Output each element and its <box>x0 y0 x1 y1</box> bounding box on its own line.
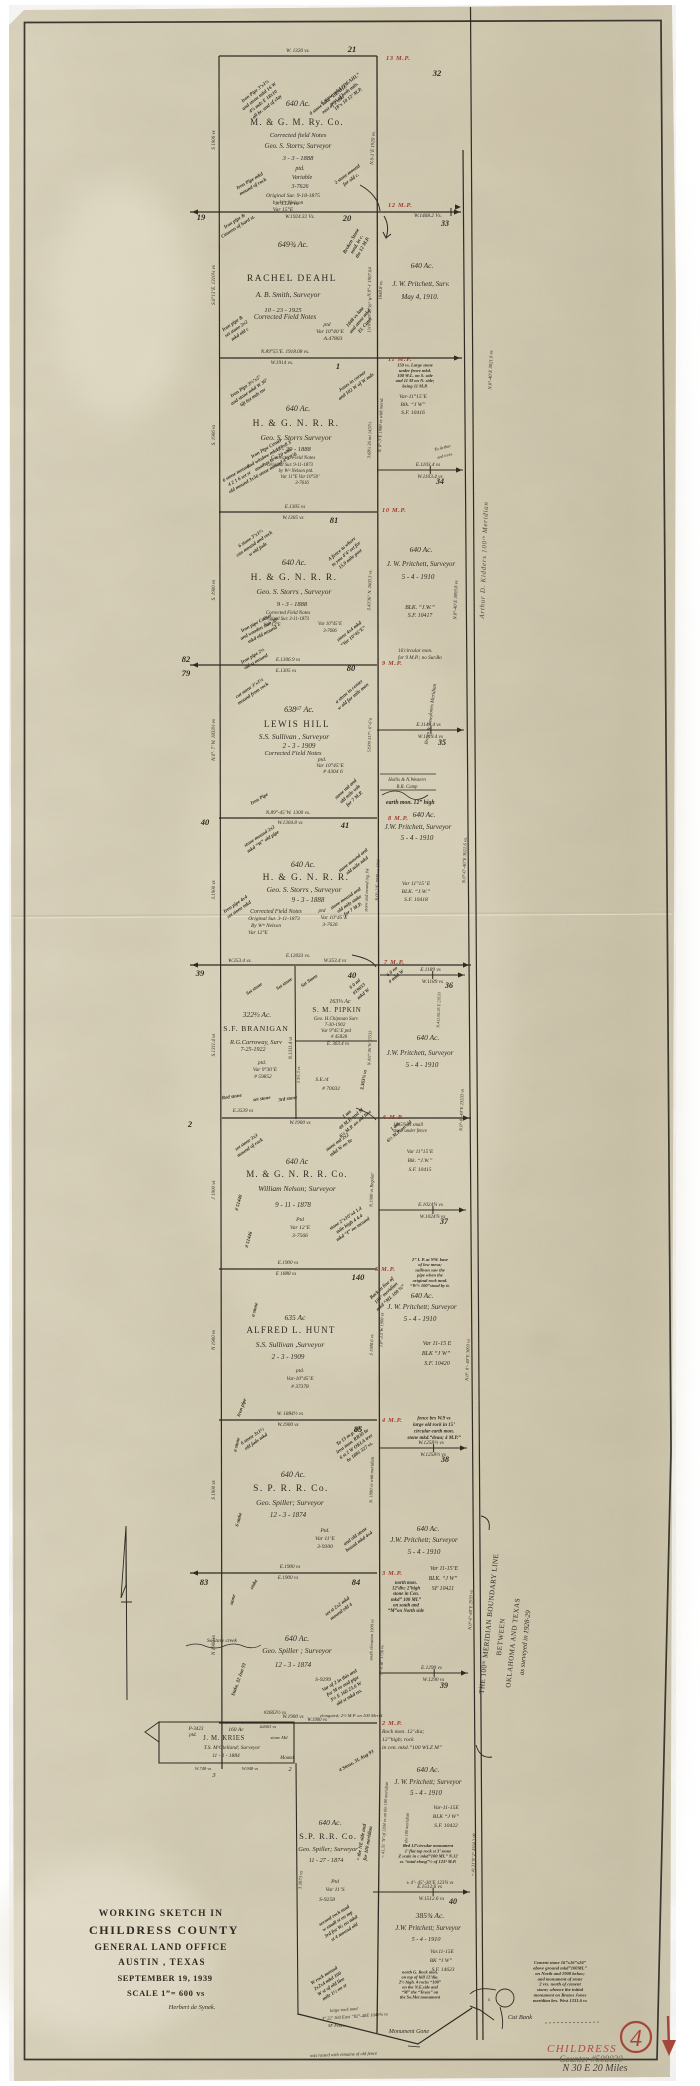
svg-text:ptd.: ptd. <box>257 1060 266 1066</box>
svg-text:7 M.P.: 7 M.P. <box>384 959 405 966</box>
svg-text:W.1900 vs: W.1900 vs <box>277 1422 298 1428</box>
svg-text:W.353.4 vs: W.353.4 vs <box>324 957 346 964</box>
svg-text:5 - 4 - 1910: 5 - 4 - 1910 <box>410 1790 442 1797</box>
svg-text:S.F. 10418: S.F. 10418 <box>404 897 428 903</box>
svg-text:6 M.P.: 6 M.P. <box>383 1114 404 1121</box>
svg-text:Herbert de Synek.: Herbert de Synek. <box>168 2004 216 2011</box>
svg-text:ptd.: ptd. <box>188 1733 197 1738</box>
svg-text:#2663 vs: #2663 vs <box>260 1724 277 1729</box>
svg-text:A.47803: A.47803 <box>323 336 343 342</box>
svg-text:S.S. Sullivan , Surveyor: S.S. Sullivan , Surveyor <box>259 732 329 741</box>
svg-text:meridian brs. West 1331.6 vs: meridian brs. West 1331.6 vs <box>533 1998 587 2003</box>
svg-text:# 4304 6: # 4304 6 <box>323 769 343 775</box>
svg-text:5 M.P.: 5 M.P. <box>375 1266 396 1273</box>
svg-text:Var-11°15’E: Var-11°15’E <box>399 393 427 400</box>
svg-text:W.1900 vs: W.1900 vs <box>289 1120 310 1126</box>
svg-text:S-9299: S-9299 <box>315 1677 331 1683</box>
svg-text:BLK. “J W”: BLK. “J W” <box>429 1575 458 1582</box>
svg-text:Corrected Field Notes: Corrected Field Notes <box>265 750 322 757</box>
svg-text:N 1900 vs: N 1900 vs <box>212 1635 217 1656</box>
svg-text:RACHEL DEAHL: RACHEL DEAHL <box>247 274 337 284</box>
svg-text:J. M. KRIES: J. M. KRIES <box>203 1735 245 1742</box>
svg-text:Cement stone 16”x16”x24”: Cement stone 16”x16”x24” <box>534 1960 587 1965</box>
svg-text:36: 36 <box>444 981 453 990</box>
svg-text:12”high; rock: 12”high; rock <box>382 1737 414 1743</box>
svg-text:E.1189 vs: E.1189 vs <box>419 967 441 973</box>
svg-text:3 3½ 3 vs: 3 3½ 3 vs <box>296 1066 301 1083</box>
svg-text:5 - 4 - 1910: 5 - 4 - 1910 <box>402 573 435 581</box>
svg-text:Var 10°40’E: Var 10°40’E <box>316 328 344 335</box>
svg-text:19: 19 <box>197 212 206 222</box>
svg-text:E.1024¾ vs: E.1024¾ vs <box>417 1202 443 1208</box>
svg-text:40: 40 <box>347 970 357 980</box>
svg-text:9 M.P.: 9 M.P. <box>382 660 403 667</box>
svg-text:9 - 11 - 1878: 9 - 11 - 1878 <box>275 1201 311 1209</box>
svg-text:Var 11-15 E: Var 11-15 E <box>423 1341 452 1347</box>
svg-text:640 Ac.: 640 Ac. <box>410 545 433 554</box>
svg-text:ptd: ptd <box>318 908 326 914</box>
svg-text:10 M.P.: 10 M.P. <box>382 507 407 514</box>
svg-text:W.1304.8 vs: W.1304.8 vs <box>277 819 302 826</box>
svg-text:earth mon. 12” high: earth mon. 12” high <box>386 800 435 806</box>
svg-text:5 - 4 - 1910: 5 - 4 - 1910 <box>404 1315 437 1323</box>
svg-text:3-7566: 3-7566 <box>291 1233 308 1239</box>
svg-text:Corrected Field Notes: Corrected Field Notes <box>254 313 317 321</box>
svg-text:W.1512.6 vs: W.1512.6 vs <box>419 1896 445 1902</box>
svg-text:the So.Met monument: the So.Met monument <box>400 1995 441 2000</box>
svg-text:39: 39 <box>195 968 205 978</box>
svg-text:M. & G. N. R. R. Co.: M. & G. N. R. R. Co. <box>246 1169 348 1179</box>
svg-text:640 Ac.: 640 Ac. <box>319 1818 342 1827</box>
svg-text:stone mkd.“deau; 4 M.P.”: stone mkd.“deau; 4 M.P.” <box>406 1435 461 1441</box>
svg-text:E.1306.9 vs: E.1306.9 vs <box>275 657 300 663</box>
svg-text:Monument Gone: Monument Gone <box>388 2029 429 2035</box>
svg-text:41: 41 <box>340 820 350 830</box>
svg-text:N 1900 vs: N 1900 vs <box>212 1330 217 1351</box>
svg-text:large old rock in 15’: large old rock in 15’ <box>413 1423 455 1428</box>
svg-text:3 3973 vs: 3 3973 vs <box>299 1871 305 1890</box>
svg-text:E.3539 vs: E.3539 vs <box>232 1108 253 1114</box>
svg-text:# 37378: # 37378 <box>291 1384 309 1390</box>
svg-text:J. W. Pritchett, Surveyor: J. W. Pritchett, Surveyor <box>387 560 456 568</box>
svg-text:AUSTIN , TEXAS: AUSTIN , TEXAS <box>118 1957 205 1967</box>
svg-text:A. B. Smith, Surveyor: A. B. Smith, Surveyor <box>255 290 321 299</box>
svg-text:north mon.: north mon. <box>395 1581 417 1586</box>
svg-text:P-3423: P-3423 <box>188 1727 204 1732</box>
svg-text:Geo. S. Storrs , Surveyor: Geo. S. Storrs , Surveyor <box>267 885 342 894</box>
svg-text:40: 40 <box>200 817 210 827</box>
svg-text:322⅔ Ac.: 322⅔ Ac. <box>242 1010 272 1019</box>
svg-text:12’div; 2’high: 12’div; 2’high <box>392 1587 420 1592</box>
svg-text:J.W. Pritchett; Surveyor: J.W. Pritchett; Surveyor <box>390 1536 458 1544</box>
svg-text:GENERAL LAND OFFICE: GENERAL LAND OFFICE <box>94 1943 227 1953</box>
svg-text:640 Ac.: 640 Ac. <box>411 1291 434 1300</box>
svg-text:635 Ac: 635 Ac <box>285 1313 307 1322</box>
svg-text:S.0°13’E. 1310¼ vs: S.0°13’E. 1310¼ vs <box>212 265 217 305</box>
svg-text:2 vrs. north of cement: 2 vrs. north of cement <box>538 1982 581 1987</box>
svg-text:2: 2 <box>187 1119 193 1129</box>
svg-text:S. M. PIPKIN: S. M. PIPKIN <box>312 1006 361 1014</box>
svg-text:W.1305 vs: W.1305 vs <box>282 515 303 521</box>
svg-text:3-7606: 3-7606 <box>323 629 337 634</box>
svg-text:Var 11-15’E: Var 11-15’E <box>430 1566 459 1572</box>
svg-text:SCALE 1”= 600 vs: SCALE 1”= 600 vs <box>127 1988 205 1998</box>
svg-text:Var 12°E: Var 12°E <box>248 929 268 936</box>
svg-text:Geo. Spiller; Surveyor: Geo. Spiller; Surveyor <box>256 1498 324 1507</box>
svg-text:12 - 3 - 1874: 12 - 3 - 1874 <box>270 1511 307 1519</box>
svg-text:in cen. mkd.”100 WLZ M”: in cen. mkd.”100 WLZ M” <box>382 1745 442 1751</box>
svg-text:Var 9°45’E ptd: Var 9°45’E ptd <box>321 1029 352 1034</box>
svg-text:Corrected Field Notes: Corrected Field Notes <box>266 611 311 616</box>
svg-text:ptd.: ptd. <box>295 1368 304 1374</box>
svg-text:Geo. Spiller ; Surveyor: Geo. Spiller ; Surveyor <box>262 1646 332 1655</box>
svg-text:stone Md: stone Md <box>271 1735 289 1740</box>
svg-text:W.1914 vs.: W.1914 vs. <box>271 359 293 366</box>
svg-text:640 Ac.: 640 Ac. <box>291 860 315 869</box>
svg-text:W.1189 vs: W.1189 vs <box>422 979 443 985</box>
svg-text:38: 38 <box>440 1455 449 1464</box>
svg-text:S.P. R.R. Co.: S.P. R.R. Co. <box>299 1831 357 1841</box>
svg-text:5 - 4 - 1910: 5 - 4 - 1910 <box>406 1061 439 1069</box>
svg-text:20: 20 <box>342 213 352 223</box>
svg-text:84: 84 <box>352 1577 361 1587</box>
svg-text:E.1305 vs: E.1305 vs <box>284 504 305 510</box>
svg-text:J.W. Pritchett, Surveyor: J.W. Pritchett, Surveyor <box>387 1049 454 1057</box>
svg-text:640 Ac.: 640 Ac. <box>417 1524 440 1533</box>
svg-text:3 - 3 - 1888: 3 - 3 - 1888 <box>282 155 314 162</box>
svg-text:Corrected Field Notes: Corrected Field Notes <box>250 909 302 915</box>
svg-text:8 M.P.: 8 M.P. <box>388 815 409 822</box>
svg-text:H. & G. N. R. R.: H. & G. N. R. R. <box>263 873 350 883</box>
svg-text:Corrected field Notes: Corrected field Notes <box>270 132 327 139</box>
svg-text:Rock mon. 12’ dia;: Rock mon. 12’ dia; <box>381 1729 424 1735</box>
svg-text:S.E./4: S.E./4 <box>315 1076 328 1083</box>
svg-text:monument on Brazos Jones: monument on Brazos Jones <box>534 1993 587 1998</box>
svg-text:stone in Cen.: stone in Cen. <box>392 1592 419 1597</box>
svg-text:“M”on North side: “M”on North side <box>388 1608 425 1614</box>
svg-text:5 - 4 - 1910: 5 - 4 - 1910 <box>412 1936 442 1943</box>
svg-text:3.1900 vs: 3.1900 vs <box>212 880 217 899</box>
svg-text:W. 1326 vs.: W. 1326 vs. <box>286 48 310 54</box>
svg-text:S.F. 10420: S.F. 10420 <box>424 1360 449 1367</box>
svg-text:R.G.Carroway, Surv: R.G.Carroway, Surv <box>229 1039 282 1046</box>
svg-text:N.89°55’E. 1918.08 vs.: N.89°55’E. 1918.08 vs. <box>260 348 309 355</box>
svg-text:William Nelson; Surveyor: William Nelson; Surveyor <box>258 1184 336 1193</box>
svg-text:stone; whence the initial: stone; whence the initial <box>536 1987 584 1992</box>
svg-text:± 4’- 45’-30’E 123¾ vs: ± 4’- 45’-30’E 123¾ vs <box>406 1881 453 1886</box>
svg-text:3-7626: 3-7626 <box>321 922 338 928</box>
svg-text:39: 39 <box>439 1681 448 1690</box>
svg-text:S. 1900 vs: S. 1900 vs <box>212 580 217 600</box>
svg-text:H. & G. N. R. R.: H. & G. N. R. R. <box>253 419 340 429</box>
svg-text:circular earth mon.: circular earth mon. <box>414 1429 454 1434</box>
svg-text:E 1888 vs: E 1888 vs <box>275 1271 296 1277</box>
svg-text:640 Ac.: 640 Ac. <box>282 558 306 567</box>
svg-text:Original Sur. 9-18-1875: Original Sur. 9-18-1875 <box>266 193 320 199</box>
svg-text:13 M.P.: 13 M.P. <box>386 55 411 62</box>
svg-text:638⁶⁷ Ac.: 638⁶⁷ Ac. <box>284 705 314 714</box>
svg-text:BLK “J W”: BLK “J W” <box>422 1350 451 1357</box>
svg-text:4: 4 <box>630 2026 642 2052</box>
svg-text:Var 11’S: Var 11’S <box>325 1887 344 1893</box>
svg-text:4 M.P.: 4 M.P. <box>381 1417 403 1424</box>
svg-text:81: 81 <box>330 515 339 525</box>
svg-text:Variable: Variable <box>292 175 313 181</box>
svg-text:E.1305 vs: E.1305 vs <box>275 668 296 674</box>
svg-text:5F Fence: 5F Fence <box>328 2023 345 2028</box>
svg-text:M. & G. M. Ry. Co.: M. & G. M. Ry. Co. <box>250 117 344 127</box>
svg-text:J. W. Pritchett; Surveyor: J. W. Pritchett; Surveyor <box>387 1303 456 1311</box>
svg-text:Var-11-15E: Var-11-15E <box>433 1805 459 1811</box>
svg-text:# 70032: # 70032 <box>322 1086 340 1092</box>
svg-text:Ptd: Ptd <box>330 1879 339 1885</box>
svg-text:# 1324 vs.: # 1324 vs. <box>277 201 300 207</box>
svg-text:2 M.P.: 2 M.P. <box>381 1720 403 1727</box>
svg-text:mkd” 100 ML”: mkd” 100 ML” <box>391 1598 422 1603</box>
svg-text:ptd.: ptd. <box>294 166 304 172</box>
svg-text:elongated; 2½ M.P. on 100 Meri: elongated; 2½ M.P. on 100 Merid. <box>320 1713 383 1718</box>
svg-text:163⅓ Ac: 163⅓ Ac <box>329 999 351 1005</box>
svg-text:S.F. BRANIGAN: S.F. BRANIGAN <box>223 1024 288 1033</box>
svg-text:E. 363.4 vs: E. 363.4 vs <box>326 1042 349 1047</box>
svg-text:Geo. Spiller; Surveyor: Geo. Spiller; Surveyor <box>298 1846 358 1853</box>
svg-text:Var 10°45’E: Var 10°45’E <box>318 622 342 627</box>
svg-text:11 - 27 - 1874: 11 - 27 - 1874 <box>309 1857 344 1864</box>
svg-text:5 - 4 - 1910: 5 - 4 - 1910 <box>408 1548 441 1556</box>
svg-text:Geo. S. Storrs Surveyor: Geo. S. Storrs Surveyor <box>260 433 331 442</box>
svg-text:W.1468.2 Vs.: W.1468.2 Vs. <box>414 213 442 219</box>
svg-text:W.748 vs: W.748 vs <box>195 1766 212 1771</box>
svg-text:W.353.4 vs.: W.353.4 vs. <box>228 957 252 964</box>
svg-text:385¾ Ac.: 385¾ Ac. <box>415 1911 445 1920</box>
svg-text:# 59852: # 59852 <box>254 1074 272 1080</box>
svg-text:S 1900.6 vs: S 1900.6 vs <box>369 1334 375 1355</box>
svg-text:“W½ 100”stood by it.: “W½ 100”stood by it. <box>410 1283 450 1288</box>
svg-text:SF 10421: SF 10421 <box>432 1585 454 1592</box>
svg-text:640 Ac.: 640 Ac. <box>413 810 436 819</box>
svg-text:Geo. S. Storrs; Surveyor: Geo. S. Storrs; Surveyor <box>265 143 332 150</box>
svg-text:Var 15°E: Var 15°E <box>273 206 294 213</box>
svg-text:Blk. “J.W.”: Blk. “J.W.” <box>408 1157 433 1164</box>
svg-text:ALFRED L. HUNT: ALFRED L. HUNT <box>246 1325 335 1335</box>
svg-text:WORKING SKETCH IN: WORKING SKETCH IN <box>99 1909 223 1919</box>
svg-text:LEWIS HILL: LEWIS HILL <box>264 719 330 729</box>
svg-text:160 Ac: 160 Ac <box>228 1727 244 1733</box>
svg-text:S.F. 10422: S.F. 10422 <box>434 1823 458 1829</box>
svg-text:S. 1906 vs: S. 1906 vs <box>212 425 217 445</box>
svg-text:S. P. R. R. Co.: S. P. R. R. Co. <box>253 1484 329 1494</box>
svg-text:16'circular mon.: 16'circular mon. <box>398 648 432 654</box>
svg-text:st. “total elong”½ of 123³ M.P: st. “total elong”½ of 123³ M.P. <box>399 1859 456 1864</box>
svg-text:W.1258⅔ vs: W.1258⅔ vs <box>418 1440 444 1446</box>
svg-text:E.1103.4 vs: E.1103.4 vs <box>415 462 440 468</box>
svg-text:S.F. 10416: S.F. 10416 <box>401 410 425 416</box>
svg-text:T.S. MᶜClelland; Surveyor: T.S. MᶜClelland; Surveyor <box>204 1745 261 1751</box>
svg-text:May 4, 1910.: May 4, 1910. <box>401 293 439 301</box>
svg-text:S.F. 10415: S.F. 10415 <box>409 1167 432 1173</box>
svg-text:3-9300: 3-9300 <box>316 1544 333 1550</box>
svg-text:12 - 3 - 1874: 12 - 3 - 1874 <box>275 1661 312 1669</box>
svg-text:E.12033 vs.: E.12033 vs. <box>285 953 310 959</box>
svg-text:7-25-1922: 7-25-1922 <box>241 1047 266 1053</box>
svg-text:N.0°· 7’ W. 1833½ vs: N.0°· 7’ W. 1833½ vs <box>212 719 217 762</box>
svg-text:Original Sur. 3-11-1873: Original Sur. 3-11-1873 <box>248 916 300 922</box>
svg-text:5 - 4 - 1910: 5 - 4 - 1910 <box>401 834 434 842</box>
svg-text:79: 79 <box>182 668 191 678</box>
svg-text:9 - 3 - 1888: 9 - 3 - 1888 <box>277 601 308 608</box>
svg-text:1848.8 vs.: 1848.8 vs. <box>379 280 385 300</box>
svg-text:J. W. Pritchett; Surveyor: J. W. Pritchett; Surveyor <box>394 1779 461 1786</box>
svg-text:3-7626: 3-7626 <box>291 184 309 190</box>
svg-text:3 M.P.: 3 M.P. <box>381 1570 403 1577</box>
svg-text:7-30-1902: 7-30-1902 <box>325 1023 346 1028</box>
svg-text:J.W. Pritchett, Surveyor: J.W. Pritchett, Surveyor <box>385 823 452 831</box>
svg-text:640 Ac.: 640 Ac. <box>417 1033 440 1042</box>
svg-text:640 Ac.: 640 Ac. <box>286 404 310 413</box>
svg-text:9 - 3 - 1888: 9 - 3 - 1888 <box>292 896 325 904</box>
svg-text:BLK. “J.W.”: BLK. “J.W.” <box>405 604 435 611</box>
svg-text:J.W. Pritchett; Surveyor: J.W. Pritchett; Surveyor <box>395 1925 461 1932</box>
svg-text:Geo. H.Chipman Surv: Geo. H.Chipman Surv <box>314 1017 359 1022</box>
svg-text:34: 34 <box>435 477 444 486</box>
svg-text:Var-10°45’E: Var-10°45’E <box>286 1375 314 1382</box>
svg-text:BLK “J W”: BLK “J W” <box>433 1813 459 1820</box>
svg-text:2 - 3 - 1909: 2 - 3 - 1909 <box>283 742 316 750</box>
svg-text:and monument of stone: and monument of stone <box>538 1976 583 1981</box>
svg-text:Hollis & N.Western: Hollis & N.Western <box>387 778 426 783</box>
svg-text:on south and: on south and <box>393 1603 419 1608</box>
svg-text:11 - 1 - 1884: 11 - 1 - 1884 <box>212 1753 240 1759</box>
svg-text:140: 140 <box>352 1272 366 1282</box>
svg-text:32: 32 <box>432 68 442 78</box>
svg-text:SEPTEMBER 19, 1939: SEPTEMBER 19, 1939 <box>117 1973 212 1983</box>
svg-text:N.1311.4 vs: N.1311.4 vs <box>289 1037 294 1061</box>
svg-text:S-9258: S-9258 <box>319 1897 335 1903</box>
svg-text:35: 35 <box>437 738 446 747</box>
svg-text:649¾ Ac.: 649¾ Ac. <box>278 240 308 249</box>
svg-text:#2663½ vs: #2663½ vs <box>264 1709 286 1716</box>
svg-text:Var 10°45’E: Var 10°45’E <box>316 762 344 769</box>
svg-text:Var 9°30’E: Var 9°30’E <box>253 1066 278 1073</box>
svg-text:CHILDRESS COUNTY: CHILDRESS COUNTY <box>89 1923 239 1937</box>
svg-text:fence brs W.9 vs: fence brs W.9 vs <box>417 1416 450 1421</box>
svg-text:Blk. “J W”: Blk. “J W” <box>400 401 425 408</box>
svg-text:W. 1884½ vs: W. 1884½ vs <box>277 1410 303 1417</box>
svg-text:BLK. “J.W.”: BLK. “J.W.” <box>402 888 431 895</box>
svg-text:640 Ac.: 640 Ac. <box>417 1765 440 1774</box>
svg-text:BK “J W”: BK “J W” <box>430 1957 452 1964</box>
svg-text:N.89°-45’W. 1300 vs.: N.89°-45’W. 1300 vs. <box>265 809 310 816</box>
svg-text:Var 11°E Var 10°50’: Var 11°E Var 10°50’ <box>280 475 320 480</box>
svg-text:640 Ac.: 640 Ac. <box>286 99 310 108</box>
svg-text:0°-0′38″ 1736 vs: 0°-0′38″ 1736 vs <box>378 1645 384 1675</box>
svg-text:37: 37 <box>439 1217 449 1226</box>
svg-text:Var 11°15’ E: Var 11°15’ E <box>402 880 431 887</box>
svg-text:640 Ac.: 640 Ac. <box>281 1470 305 1479</box>
svg-text:S.S. Sullivan ,Surveyor: S.S. Sullivan ,Surveyor <box>256 1340 325 1349</box>
svg-text:Var 12’E: Var 12’E <box>290 1225 311 1231</box>
svg-text:being 11 M.P.: being 11 M.P. <box>402 383 427 388</box>
svg-text:Var 11°15’E: Var 11°15’E <box>407 1148 434 1155</box>
svg-text:Var 11’E: Var 11’E <box>315 1536 335 1542</box>
svg-text:W.1900 vs: W.1900 vs <box>307 1718 327 1723</box>
svg-text:21: 21 <box>347 44 357 54</box>
svg-text:S 1906 vs: S 1906 vs <box>212 130 217 149</box>
svg-text:Cut Bank: Cut Bank <box>508 2014 532 2021</box>
svg-text:by Wᵐ Nelson ptd.: by Wᵐ Nelson ptd. <box>279 469 314 474</box>
svg-text:S.1311.4 vs: S.1311.4 vs <box>212 1034 217 1057</box>
svg-text:640 Ac: 640 Ac <box>286 1157 309 1166</box>
svg-text:E.1900 vs: E.1900 vs <box>279 1564 300 1570</box>
svg-text:for 9 M.P.; no Sur.Bo: for 9 M.P.; no Sur.Bo <box>398 654 442 661</box>
svg-text:N 30 E 20 Miles: N 30 E 20 Miles <box>562 2063 628 2074</box>
svg-text:Ptd: Ptd <box>295 1217 304 1223</box>
svg-text:S.F. 10417: S.F. 10417 <box>408 612 434 619</box>
svg-text:J 1900 vs: J 1900 vs <box>212 1181 217 1200</box>
svg-text:Geo. S. Storrs , Surveyor: Geo. S. Storrs , Surveyor <box>257 587 332 596</box>
svg-text:1: 1 <box>336 361 340 371</box>
svg-text:12 M.P.: 12 M.P. <box>388 202 413 209</box>
svg-text:82: 82 <box>182 654 191 664</box>
svg-text:Mound: Mound <box>279 1756 294 1761</box>
svg-text:40: 40 <box>448 1897 457 1906</box>
svg-text:W.1924.32 Vs.: W.1924.32 Vs. <box>285 213 315 220</box>
svg-text:Var.11-15E: Var.11-15E <box>430 1949 454 1955</box>
svg-text:J. W. Pritchett, Surv.: J. W. Pritchett, Surv. <box>392 280 450 288</box>
svg-text:above ground mkd”100ML”: above ground mkd”100ML” <box>533 1966 587 1971</box>
svg-text:33: 33 <box>440 219 449 228</box>
svg-text:R.R. Camp: R.R. Camp <box>396 785 419 790</box>
svg-text:H. & G. N. R. R.: H. & G. N. R. R. <box>251 573 338 583</box>
svg-text:W.948 vs: W.948 vs <box>242 1766 259 1771</box>
svg-text:83: 83 <box>200 1577 209 1587</box>
svg-text:80: 80 <box>347 663 356 673</box>
svg-text:S 1900 vs: S 1900 vs <box>212 1480 217 1499</box>
svg-text:By Wᵐ Nelson: By Wᵐ Nelson <box>251 923 281 929</box>
svg-text:Ptd.: Ptd. <box>319 1528 329 1534</box>
svg-text:# 45828: # 45828 <box>331 1035 348 1040</box>
svg-text:E.1290 vs: E.1290 vs <box>420 1665 442 1671</box>
svg-text:2 - 3 - 1909: 2 - 3 - 1909 <box>272 1353 305 1361</box>
svg-text:on North and 1908 below;: on North and 1908 below; <box>535 1971 585 1976</box>
svg-text:640 Ac.: 640 Ac. <box>285 1634 309 1643</box>
svg-text:E.1900 vs: E.1900 vs <box>277 1575 298 1581</box>
svg-text:E.1900 vs: E.1900 vs <box>277 1260 298 1266</box>
svg-text:3-7616: 3-7616 <box>295 481 309 486</box>
svg-text:640 Ac.: 640 Ac. <box>411 261 434 270</box>
svg-text:ptd: ptd <box>322 322 330 328</box>
